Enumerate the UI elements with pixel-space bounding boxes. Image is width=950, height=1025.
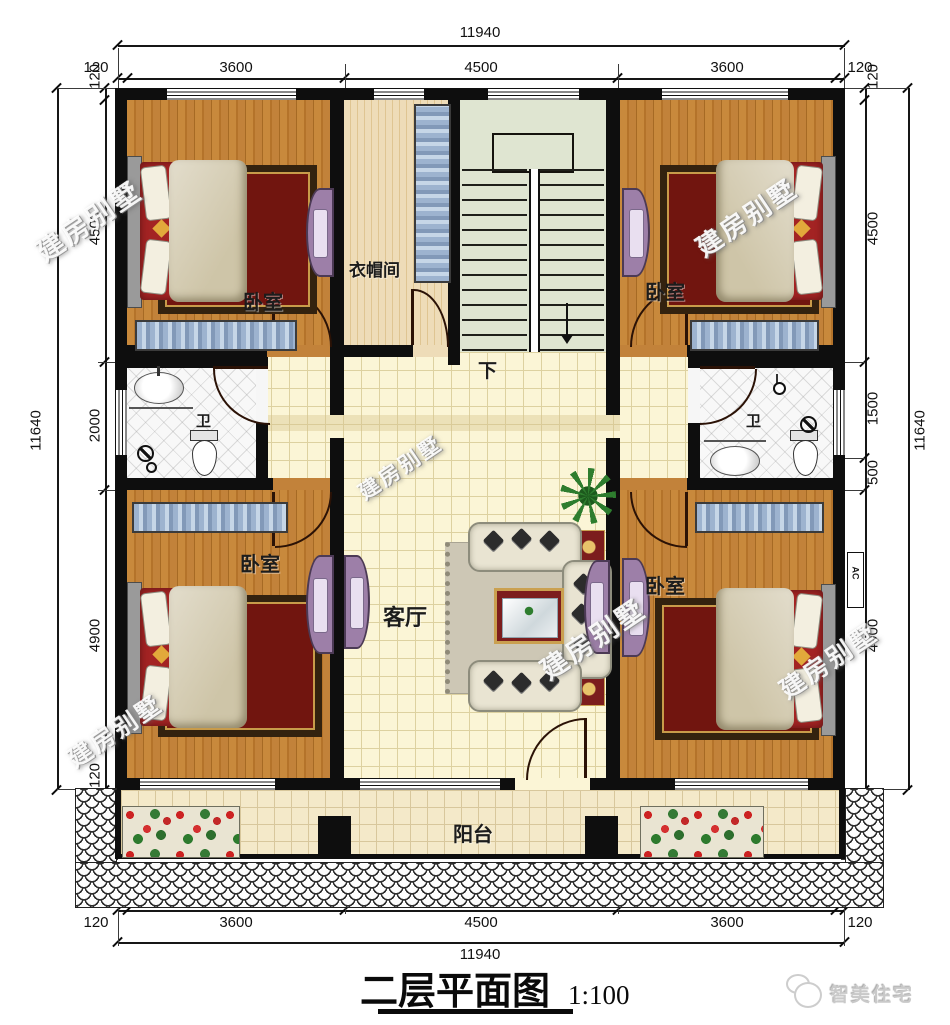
witness-line [618,64,619,88]
bedroom-label: 卧室 [243,286,283,315]
wardrobe [695,502,824,533]
dim-seg: 4900 [87,611,104,661]
dim-seg: 3600 [196,59,276,76]
dim-seg: 4500 [441,59,521,76]
faucet [157,366,160,376]
floor-drain [137,445,154,462]
dim-line [908,88,910,790]
wardrobe [135,320,297,351]
drawing-title-text: 二层平面图 [360,960,550,1015]
plant [560,468,616,524]
bedroom-label: 卧室 [645,276,685,305]
witness-line [845,458,865,459]
dim-seg: 3600 [196,914,276,931]
bath-counter [704,440,766,442]
witness-line [845,88,908,89]
balcony-pillar [585,816,618,856]
dim-line [118,45,845,47]
dim-line [118,78,845,80]
stair-down-label: 下 [478,356,497,383]
ac-unit [847,552,864,608]
witness-line [98,362,115,363]
balcony-label: 阳台 [453,818,493,847]
window [488,88,579,100]
brand-mascot-icon [794,982,822,1008]
bath-label: 卫 [196,410,211,431]
witness-line [57,88,115,89]
dim-line [118,910,845,912]
cloakroom-label: 衣帽间 [349,256,400,281]
dim-seg: 120 [842,914,878,931]
witness-line [118,906,119,946]
witness-line [844,48,845,88]
window [140,778,275,790]
witness-line [844,906,845,946]
living-room-label: 客厅 [383,600,427,632]
dresser [306,555,334,654]
dim-seg: 1500 [865,384,882,434]
dim-line [118,942,845,944]
window [115,390,127,455]
witness-line [845,490,865,491]
stair-treads[interactable] [462,169,527,352]
dim-seg: 4500 [441,914,521,931]
bed [127,152,251,310]
bedroom-label: 卧室 [645,570,685,599]
stair-arrow-head [561,335,573,344]
window [374,88,424,100]
ac-label: AC [851,567,861,580]
window [167,88,296,100]
dim-total-left: 11640 [28,403,45,459]
flower-box [122,806,240,858]
bedroom-label: 卧室 [240,548,280,577]
dim-total-top: 11940 [405,24,555,41]
stair-landing [492,133,574,173]
dim-seg: 2000 [87,401,104,451]
window [360,778,500,790]
drawing-title: 二层平面图 1:100 [360,960,630,1015]
stair-direction-arrow [566,303,568,337]
cloakroom-closet [414,104,451,283]
flower-box [640,806,764,858]
dim-seg: 3600 [687,59,767,76]
sink[interactable] [134,372,184,404]
wall-interior [127,478,273,490]
roof-apron [75,862,884,908]
table-plant [522,604,536,618]
dresser [344,555,370,649]
drawing-scale: 1:100 [568,980,630,1011]
window [833,390,845,455]
door-gap [273,478,330,490]
balcony-wall [839,790,845,858]
wall-interior [606,100,620,415]
floor-plan: 11940 120 3600 4500 3600 120 11640 120 4… [0,0,950,1025]
wardrobe [132,502,288,533]
dim-seg: 3600 [687,914,767,931]
faucet-valve [773,382,786,395]
hall-threshold-shade [268,415,620,431]
window [675,778,808,790]
dresser [622,188,650,277]
witness-line [98,490,115,491]
witness-line [845,362,865,363]
title-underline [378,1009,573,1014]
balcony-wall [115,790,121,858]
dim-seg: 120 [865,52,882,102]
wardrobe [690,320,819,351]
wall-interior [687,478,833,490]
drain-valve [146,462,157,473]
bath-counter [129,407,193,409]
door-gap [620,478,687,490]
dresser [306,188,334,277]
witness-line [118,48,119,88]
wall-interior [344,345,413,357]
brand-name: 智美住宅 [830,980,914,1007]
door-gap [688,368,700,423]
dim-seg: 4500 [865,204,882,254]
bath-label: 卫 [746,410,761,431]
balcony-pillar [318,816,351,856]
dim-total-right: 11640 [912,403,929,459]
floor-drain [800,416,817,433]
dim-seg: 120 [78,914,114,931]
sink[interactable] [710,446,760,476]
dim-seg: 120 [87,52,104,102]
witness-line [345,64,346,88]
stair-treads[interactable] [537,169,604,352]
dim-line [57,88,59,790]
window [662,88,788,100]
stair-handrail [529,169,540,352]
